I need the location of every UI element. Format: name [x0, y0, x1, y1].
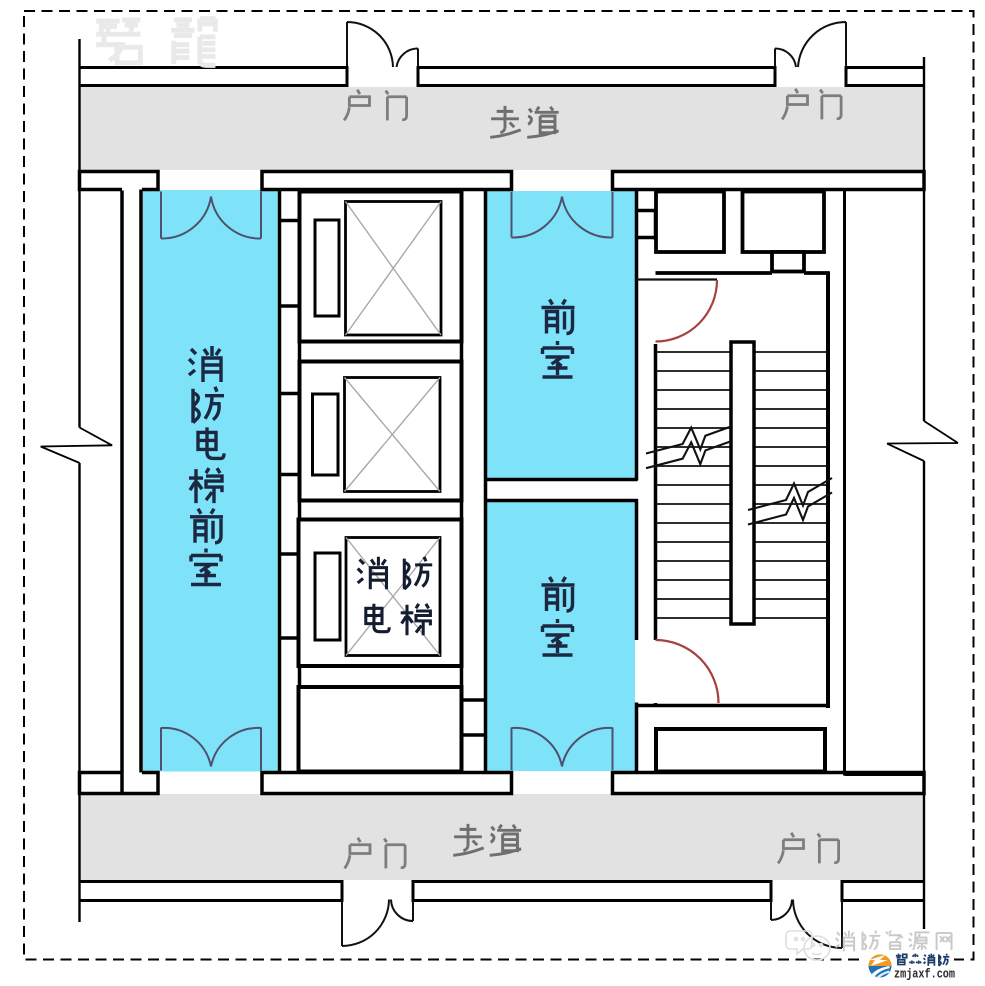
svg-text:zmjaxf.com: zmjaxf.com	[894, 967, 955, 982]
